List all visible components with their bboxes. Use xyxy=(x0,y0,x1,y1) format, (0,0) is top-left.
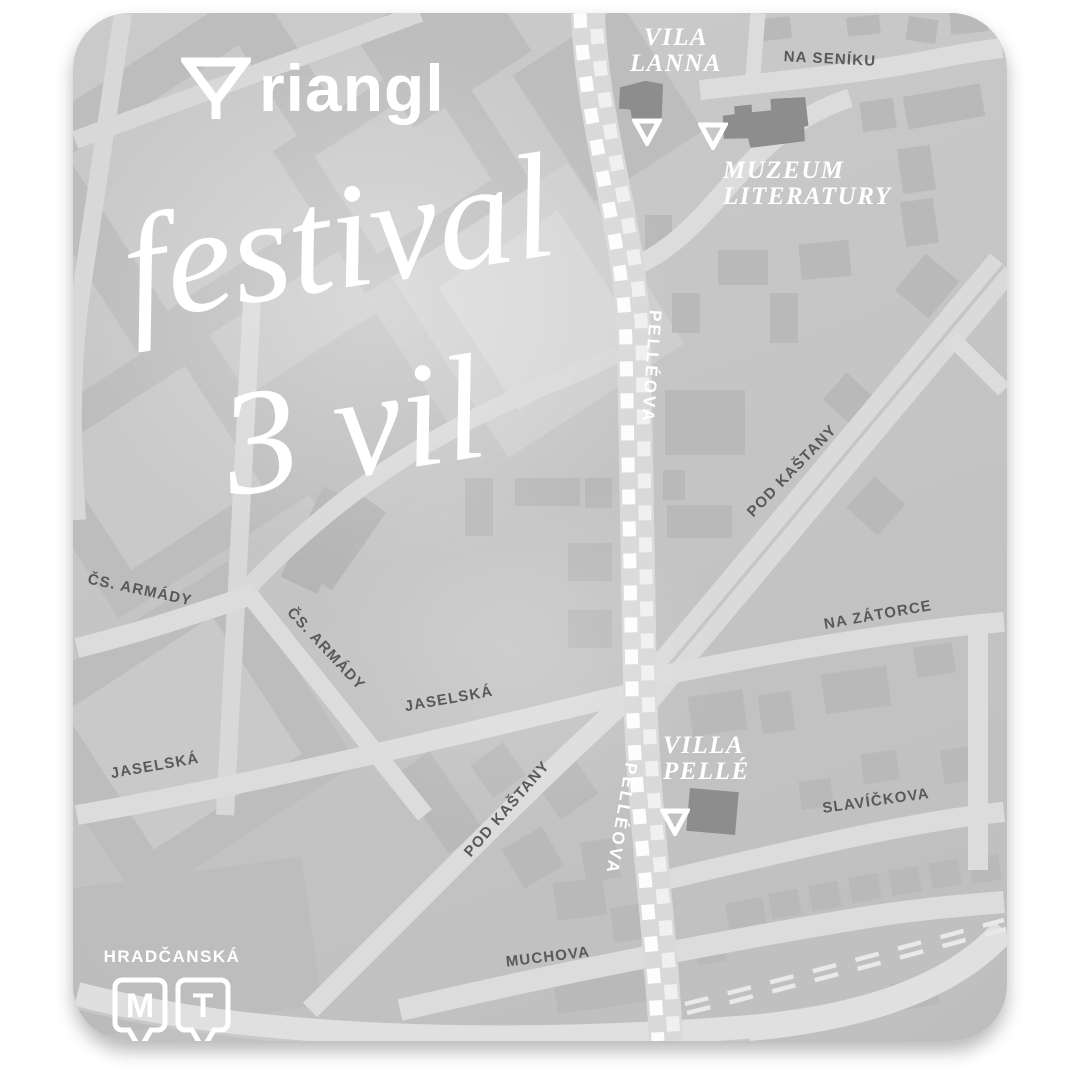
road-jaselska xyxy=(77,692,636,815)
metro-pin-label: M xyxy=(112,987,168,1026)
muzeum-literatury-marker-icon xyxy=(698,122,728,150)
logo: riangl xyxy=(181,55,445,121)
poster: riangl festival 3 vil VILA LANNA MUZEUM … xyxy=(0,0,1080,1080)
venue-label-muzeum-literatury: MUZEUM LITERATURY xyxy=(723,158,892,210)
venue-label-vila-lanna: VILA LANNA xyxy=(630,25,722,77)
vila-lanna-marker-icon xyxy=(632,118,662,146)
venue-label-villa-pelle: VILLA PELLÉ xyxy=(663,733,750,785)
map-card: riangl festival 3 vil VILA LANNA MUZEUM … xyxy=(73,13,1007,1041)
tram-pin-label: T xyxy=(175,987,231,1026)
villa-pelle-building xyxy=(686,788,739,835)
road-top-short xyxy=(752,13,758,88)
tram-pin: T xyxy=(175,977,231,1041)
triangle-down-icon xyxy=(181,55,251,121)
metro-pin: M xyxy=(112,977,168,1041)
logo-text: riangl xyxy=(259,55,445,121)
road-cs-armady-1 xyxy=(77,596,248,648)
road-branch xyxy=(952,338,1004,390)
station-label-hradcanska: HRADČANSKÁ xyxy=(104,947,241,967)
villa-pelle-marker-icon xyxy=(660,808,690,836)
